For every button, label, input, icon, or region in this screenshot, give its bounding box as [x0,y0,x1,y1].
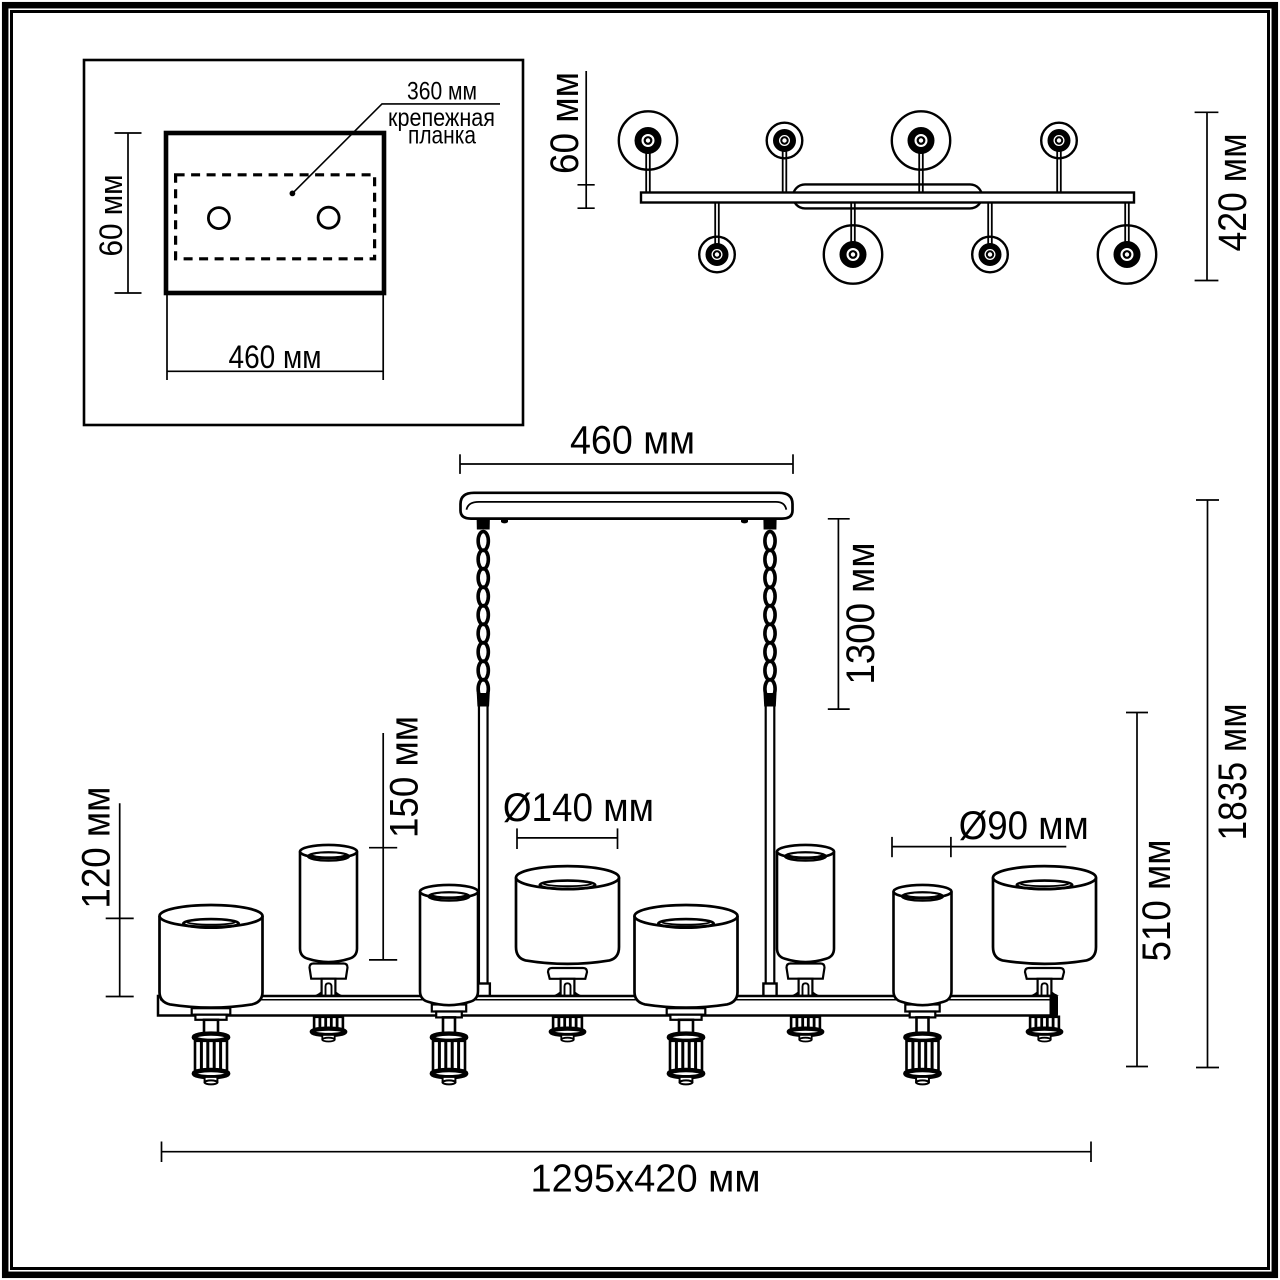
svg-text:планка: планка [408,122,476,150]
svg-text:1300 мм: 1300 мм [839,543,883,685]
svg-text:360 мм: 360 мм [407,78,477,106]
svg-text:1835 мм: 1835 мм [1211,704,1255,841]
svg-text:460 мм: 460 мм [570,419,695,463]
svg-text:60 мм: 60 мм [93,175,129,257]
svg-text:150 мм: 150 мм [383,716,427,838]
svg-text:120 мм: 120 мм [75,787,119,909]
svg-text:420 мм: 420 мм [1211,134,1255,252]
svg-text:Ø140 мм: Ø140 мм [503,786,654,830]
svg-text:510 мм: 510 мм [1135,840,1179,962]
svg-text:460 мм: 460 мм [229,339,322,375]
svg-text:Ø90 мм: Ø90 мм [959,804,1089,848]
svg-text:60 мм: 60 мм [543,72,587,174]
svg-text:1295x420 мм: 1295x420 мм [531,1158,761,1201]
